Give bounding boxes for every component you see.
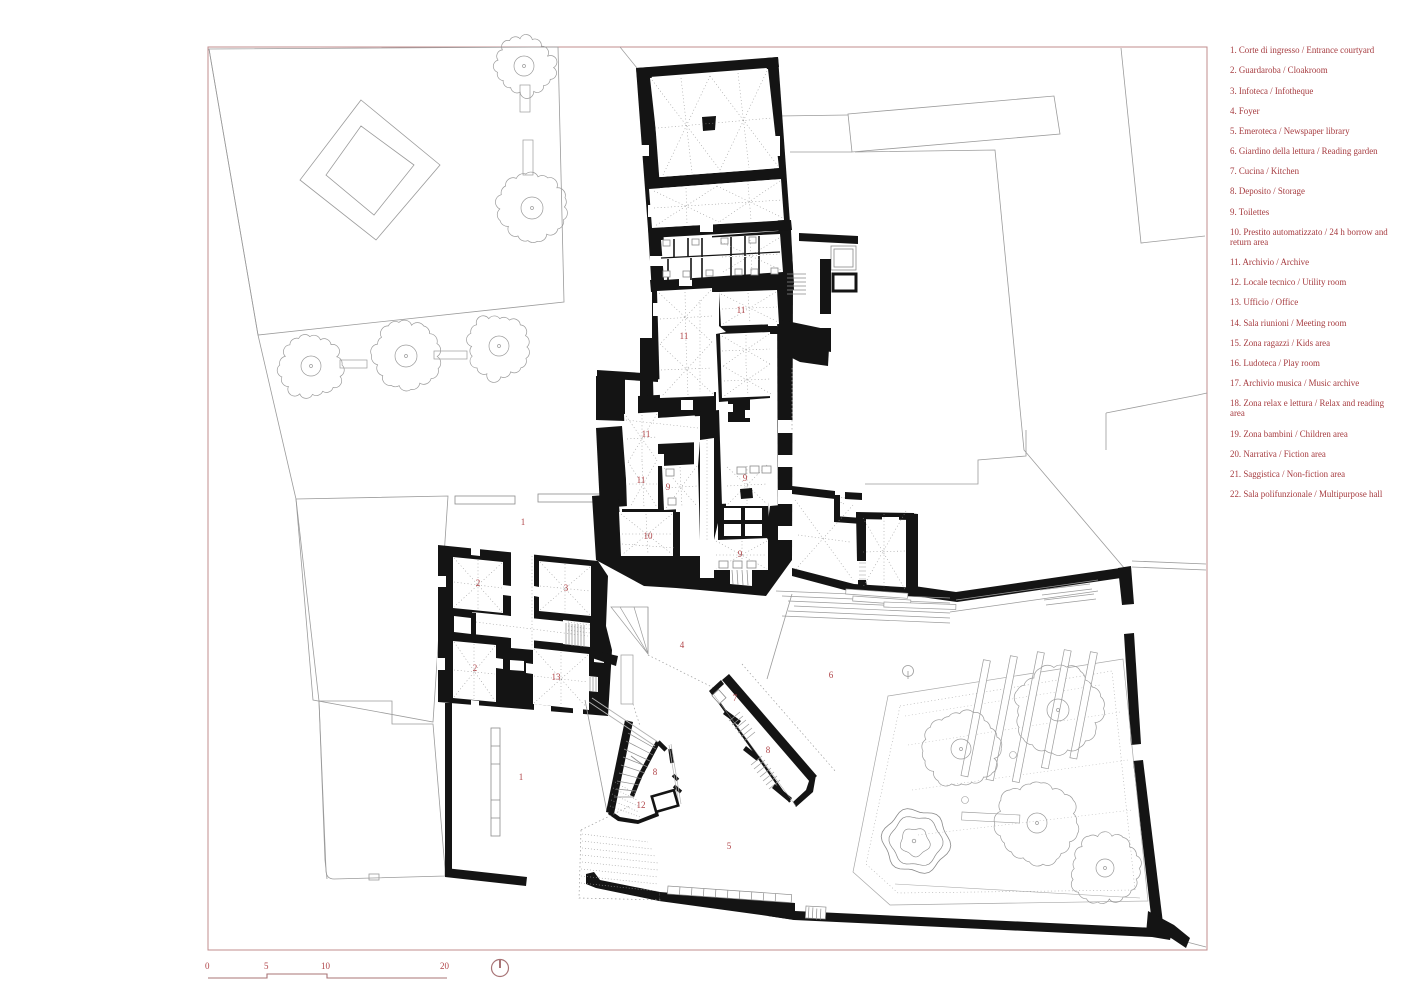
svg-text:19. Zona bambini / Children ar: 19. Zona bambini / Children area — [1230, 429, 1348, 439]
svg-text:15. Zona ragazzi / Kids area: 15. Zona ragazzi / Kids area — [1230, 338, 1330, 348]
svg-text:10: 10 — [321, 961, 331, 971]
svg-text:7. Cucina / Kitchen: 7. Cucina / Kitchen — [1230, 166, 1300, 176]
svg-text:11: 11 — [637, 475, 646, 485]
svg-text:2: 2 — [473, 663, 478, 673]
svg-text:21. Saggistica / Non-fiction a: 21. Saggistica / Non-fiction area — [1230, 469, 1345, 479]
svg-text:11: 11 — [680, 331, 689, 341]
svg-text:3: 3 — [564, 583, 569, 593]
svg-text:11: 11 — [737, 305, 746, 315]
svg-text:6: 6 — [829, 670, 834, 680]
svg-text:12: 12 — [637, 800, 646, 810]
svg-text:2: 2 — [476, 578, 481, 588]
svg-text:4: 4 — [680, 640, 685, 650]
svg-text:13: 13 — [552, 672, 562, 682]
svg-text:17. Archivio musica / Music ar: 17. Archivio musica / Music archive — [1230, 378, 1359, 388]
svg-text:1. Corte di ingresso / Entranc: 1. Corte di ingresso / Entrance courtyar… — [1230, 45, 1375, 55]
svg-text:9: 9 — [666, 482, 671, 492]
svg-text:7: 7 — [733, 693, 738, 703]
svg-text:2. Guardaroba / Cloakroom: 2. Guardaroba / Cloakroom — [1230, 65, 1328, 75]
svg-text:13. Ufficio / Office: 13. Ufficio / Office — [1230, 297, 1298, 307]
svg-text:8: 8 — [653, 767, 658, 777]
svg-text:return area: return area — [1230, 237, 1268, 247]
svg-text:10: 10 — [644, 531, 654, 541]
svg-text:1: 1 — [519, 772, 524, 782]
svg-text:20: 20 — [440, 961, 450, 971]
svg-text:4. Foyer: 4. Foyer — [1230, 106, 1260, 116]
svg-text:18. Zona relax e lettura / Rel: 18. Zona relax e lettura / Relax and rea… — [1230, 398, 1385, 408]
svg-text:14. Sala riunioni / Meeting ro: 14. Sala riunioni / Meeting room — [1230, 318, 1346, 328]
svg-text:12. Locale tecnico / Utility r: 12. Locale tecnico / Utility room — [1230, 277, 1346, 287]
svg-text:0: 0 — [205, 961, 210, 971]
svg-text:9: 9 — [743, 473, 748, 483]
svg-text:22. Sala polifunzionale / Mult: 22. Sala polifunzionale / Multipurpose h… — [1230, 489, 1383, 499]
svg-text:8. Deposito / Storage: 8. Deposito / Storage — [1230, 186, 1305, 196]
svg-text:11. Archivio / Archive: 11. Archivio / Archive — [1230, 257, 1309, 267]
svg-text:area: area — [1230, 408, 1245, 418]
svg-text:11: 11 — [642, 429, 651, 439]
svg-text:5. Emeroteca / Newspaper libra: 5. Emeroteca / Newspaper library — [1230, 126, 1350, 136]
svg-text:10. Prestito automatizzato / 2: 10. Prestito automatizzato / 24 h borrow… — [1230, 227, 1388, 237]
svg-text:5: 5 — [727, 841, 732, 851]
svg-text:9: 9 — [738, 549, 743, 559]
svg-text:3. Infoteca / Infotheque: 3. Infoteca / Infotheque — [1230, 86, 1313, 96]
svg-text:1: 1 — [521, 517, 526, 527]
svg-text:20. Narrativa / Fiction area: 20. Narrativa / Fiction area — [1230, 449, 1326, 459]
svg-text:9. Toilettes: 9. Toilettes — [1230, 207, 1270, 217]
svg-text:8: 8 — [766, 745, 771, 755]
svg-text:6. Giardino della lettura / Re: 6. Giardino della lettura / Reading gard… — [1230, 146, 1378, 156]
svg-text:16. Ludoteca / Play room: 16. Ludoteca / Play room — [1230, 358, 1320, 368]
svg-text:5: 5 — [264, 961, 269, 971]
